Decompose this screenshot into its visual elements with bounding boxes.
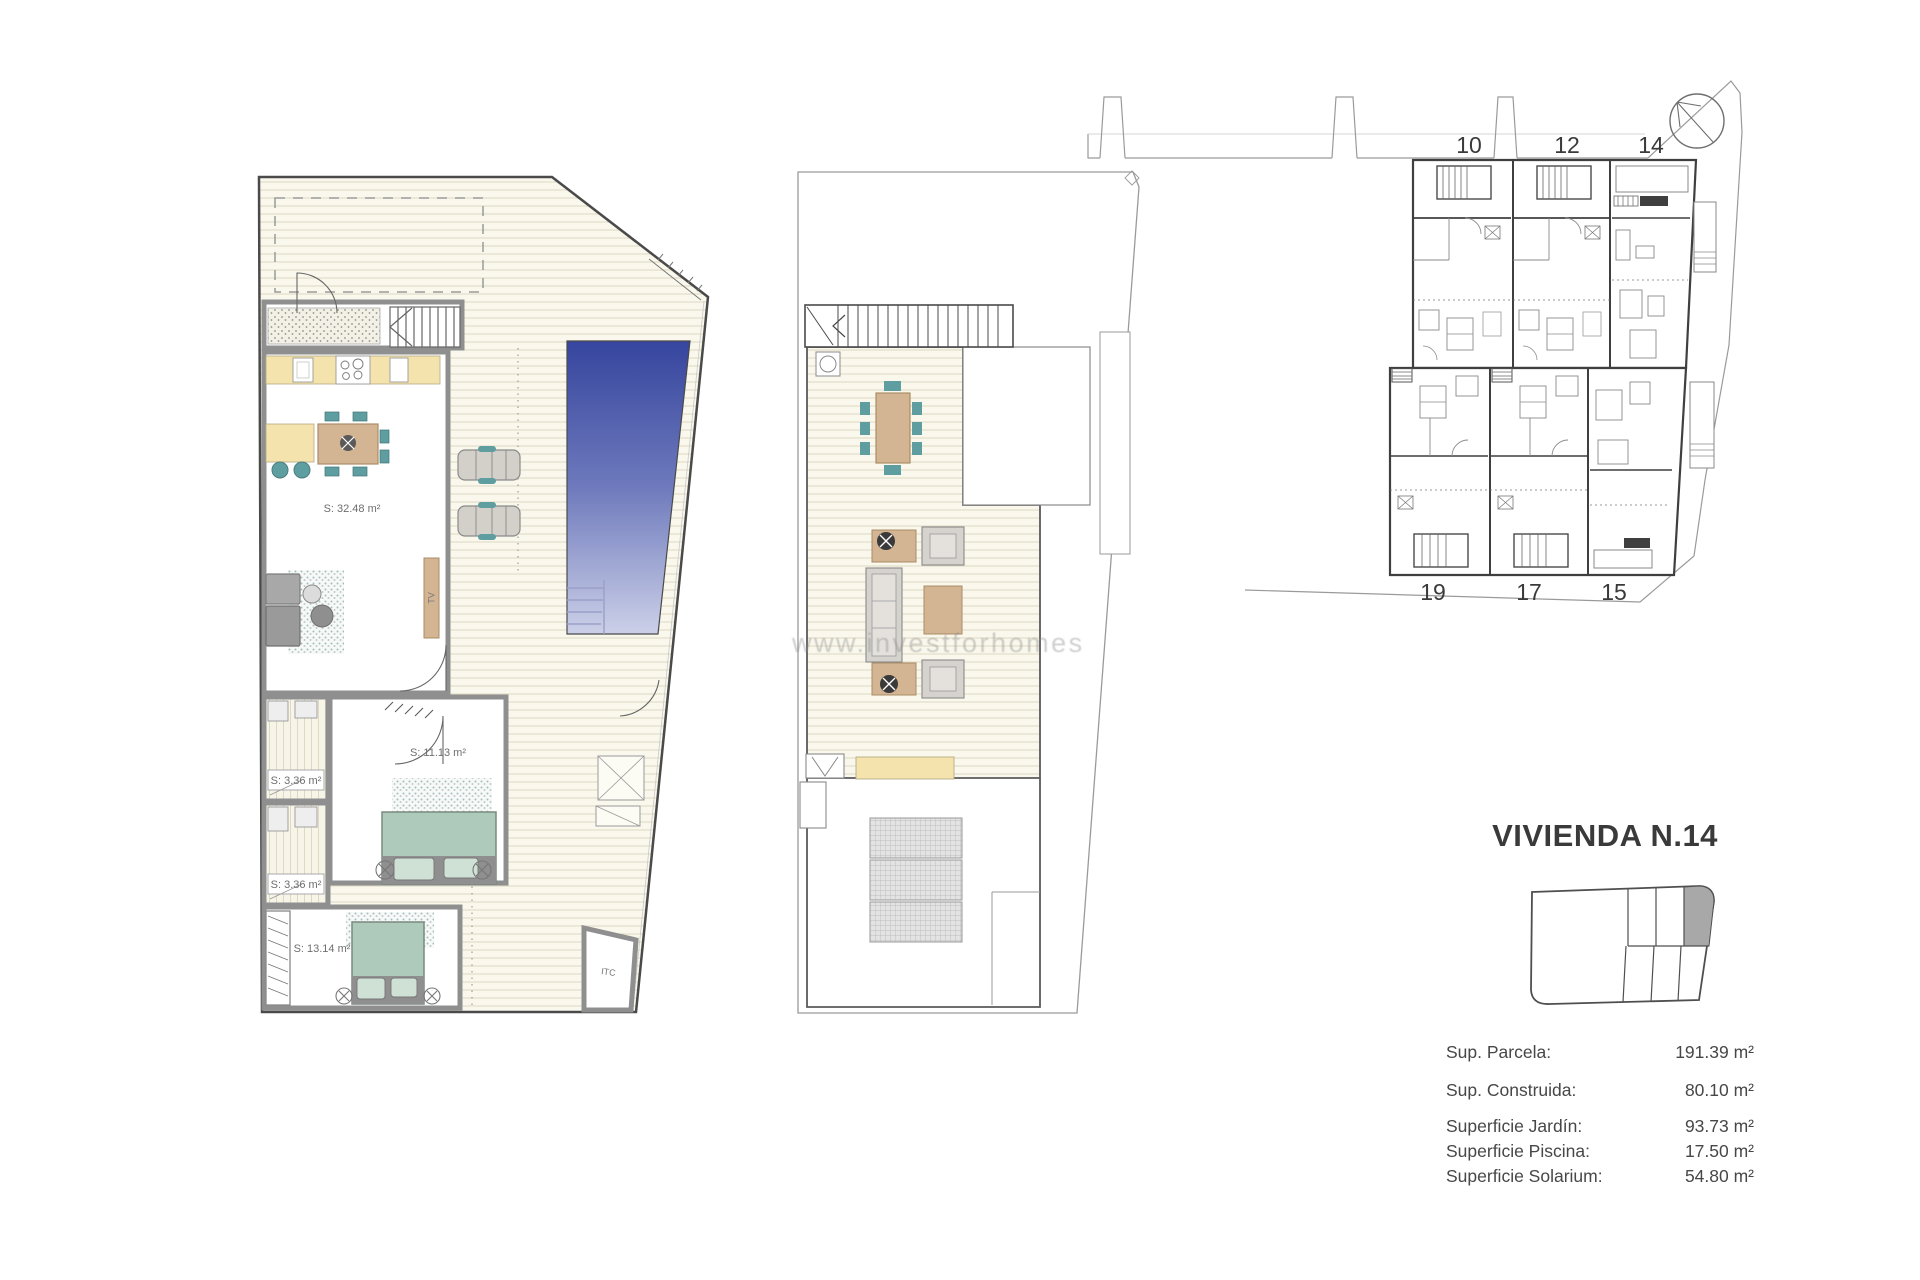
key-plan-highlight xyxy=(1684,886,1714,946)
sink xyxy=(293,358,313,382)
spec-value: 54.80 m² xyxy=(1685,1166,1754,1186)
spec-label: Superficie Piscina: xyxy=(1446,1141,1590,1161)
double-bed xyxy=(352,922,424,1004)
spec-label: Superficie Solarium: xyxy=(1446,1166,1603,1186)
stool xyxy=(294,462,310,478)
bedroom-1: S: 11.13 m² xyxy=(330,697,506,884)
bathroom-2: S: 3.36 m² xyxy=(264,803,328,905)
entry-gravel xyxy=(268,308,380,344)
site-unit-number-12: 12 xyxy=(1554,132,1580,158)
bedroom2-label: S: 13.14 m² xyxy=(294,943,351,955)
key-plan xyxy=(1531,886,1714,1004)
site-unit-number-19: 19 xyxy=(1420,579,1446,605)
deck-bed xyxy=(596,756,644,826)
site-plan: 10 12 14 19 17 15 xyxy=(1088,81,1742,605)
roof-void xyxy=(963,347,1090,505)
living-room-label: S: 32.48 m² xyxy=(324,503,381,515)
neighbor-outline xyxy=(1100,332,1130,554)
spec-label: Sup. Parcela: xyxy=(1446,1042,1551,1062)
spec-value: 93.73 m² xyxy=(1685,1116,1754,1136)
page-title: VIVIENDA N.14 xyxy=(1492,818,1718,853)
sun-lounger xyxy=(458,502,520,540)
floor-plan-sheet: TV S: 32.48 m² S: 3.36 m² xyxy=(0,0,1920,1280)
site-unit-number-14: 14 xyxy=(1638,132,1664,158)
spec-label: Sup. Construida: xyxy=(1446,1080,1576,1100)
info-panel: VIVIENDA N.14 Sup. Parcela: 191.39 m² Su… xyxy=(1446,818,1754,1186)
staircase xyxy=(805,305,1013,347)
spec-value: 191.39 m² xyxy=(1675,1042,1754,1062)
bedroom1-label: S: 11.13 m² xyxy=(410,747,466,759)
kitchen-counter xyxy=(266,356,440,384)
bathroom-1: S: 3.36 m² xyxy=(264,697,328,801)
spec-value: 80.10 m² xyxy=(1685,1080,1754,1100)
stove-icon xyxy=(336,356,370,384)
spec-value: 17.50 m² xyxy=(1685,1141,1754,1161)
bathroom2-label: S: 3.36 m² xyxy=(271,879,322,891)
sun-lounger xyxy=(458,446,520,484)
bathroom1-label: S: 3.36 m² xyxy=(271,775,322,787)
tv-label: TV xyxy=(427,592,437,604)
spec-list: Sup. Parcela: 191.39 m² Sup. Construida:… xyxy=(1446,1042,1754,1186)
solar-pergola-grid xyxy=(870,818,962,942)
site-unit-number-10: 10 xyxy=(1456,132,1482,158)
skylight xyxy=(816,352,840,376)
site-unit-number-17: 17 xyxy=(1516,579,1542,605)
tv-unit: TV xyxy=(424,558,439,638)
site-row-top xyxy=(1413,160,1696,368)
exterior-stairs xyxy=(390,307,460,347)
watermark: www.investforhomes xyxy=(791,628,1085,658)
wardrobe xyxy=(266,911,290,1005)
itc-room: ITC xyxy=(584,928,636,1010)
site-side-strips xyxy=(1690,202,1716,468)
ground-floor-plan: TV S: 32.48 m² S: 3.36 m² xyxy=(259,177,708,1012)
spec-label: Superficie Jardín: xyxy=(1446,1116,1582,1136)
site-unit-number-15: 15 xyxy=(1601,579,1627,605)
compass-icon xyxy=(1670,94,1724,148)
first-floor-plan xyxy=(798,171,1139,1013)
itc-label: ITC xyxy=(601,966,617,978)
bedroom-2: S: 13.14 m² xyxy=(264,907,460,1008)
stool xyxy=(272,462,288,478)
sofa-set xyxy=(266,570,344,654)
site-row-bottom xyxy=(1390,368,1686,575)
